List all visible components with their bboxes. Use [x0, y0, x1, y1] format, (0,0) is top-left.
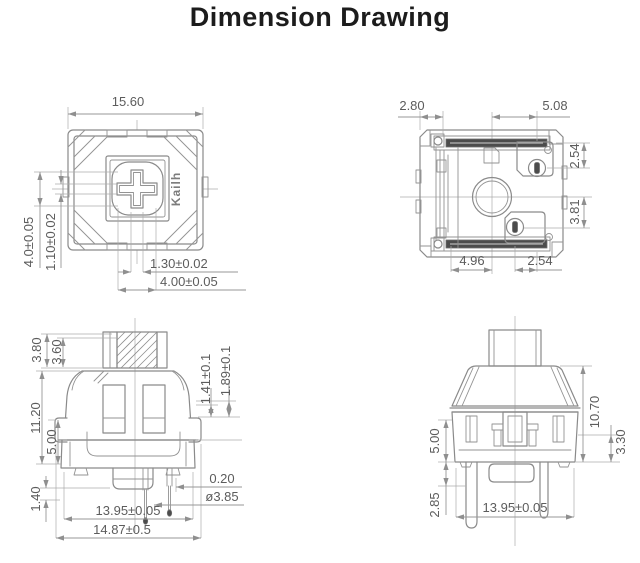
dim-label-side-pin-depth: 2.85 — [427, 492, 442, 517]
dim-label-top-slot-width: 1.30±0.02 — [150, 256, 208, 271]
stem-hatching — [117, 332, 157, 368]
dim-label-top-height-b: 1.10±0.02 — [43, 213, 58, 271]
view-bottom: 2.80 5.08 2.54 3.81 4.96 2.54 — [398, 98, 592, 274]
side-pin-left — [466, 462, 477, 528]
dim-label-boss-diameter: ø3.85 — [205, 489, 238, 504]
front-view-lower-housing — [58, 432, 198, 475]
dim-label-side-base-width: 13.95±0.05 — [483, 500, 548, 515]
side-view-dimension-lines — [446, 366, 611, 517]
dim-label-top-overall-width: 15.60 — [112, 94, 145, 109]
view-front: 3.80 3.60 11.20 5.00 1.40 1.41±0.1 1.89±… — [28, 318, 244, 538]
dim-label-pin-pitch: 5.08 — [542, 98, 567, 113]
dim-label-bottom-right: 2.54 — [527, 253, 552, 268]
contact-pin-bottom — [513, 222, 518, 233]
dim-label-side-skirt: 3.30 — [613, 429, 628, 454]
housing-corner-fillets — [72, 371, 184, 390]
dim-label-foot: 1.40 — [28, 486, 43, 511]
side-view-underside — [466, 462, 548, 528]
dim-label-pin-mid: 3.81 — [567, 199, 582, 224]
top-view-body — [63, 130, 208, 250]
contact-pin-top — [535, 163, 540, 174]
dim-label-pin-offset: 0.20 — [209, 471, 234, 486]
view-top: Kailh — [21, 94, 246, 290]
front-view-ears — [55, 418, 201, 442]
contact-pin-bottom-assembly — [505, 212, 545, 243]
drawing-canvas: Kailh — [0, 0, 640, 563]
dim-label-pin-top: 2.54 — [567, 143, 582, 168]
dim-label-front-overall-width: 14.87±0.5 — [93, 522, 151, 537]
dim-label-body-height: 11.20 — [28, 402, 43, 434]
dim-label-bottom-left: 4.96 — [459, 253, 484, 268]
leaf-spring-structure — [436, 148, 458, 248]
front-view-windows — [103, 385, 165, 433]
front-pin-right-tip — [167, 510, 171, 516]
front-view-upper-housing — [64, 371, 192, 440]
dim-label-side-lower-height: 5.00 — [427, 428, 442, 453]
dimension-drawing-page: Dimension Drawing — [0, 0, 640, 563]
dim-label-top-height-a: 4.0±0.05 — [21, 217, 36, 268]
side-center-boss — [489, 464, 534, 482]
dim-label-step-a: 1.41±0.1 — [198, 354, 213, 405]
dim-label-stem-full: 3.80 — [29, 337, 44, 362]
dim-label-step-b: 1.89±0.1 — [218, 346, 233, 397]
dim-label-side-body-height: 10.70 — [587, 396, 602, 429]
housing-dome-lines — [94, 371, 108, 383]
dim-label-top-cross-width: 4.00±0.05 — [160, 274, 218, 289]
dim-label-stem-travel: 3.60 — [49, 339, 64, 364]
view-side: 5.00 2.85 10.70 3.30 13.95±0.05 — [427, 316, 628, 546]
dim-label-left-offset: 2.80 — [399, 98, 424, 113]
brand-label: Kailh — [169, 172, 183, 206]
dim-label-base-width: 13.95±0.05 — [96, 503, 161, 518]
dim-label-lower-height: 5.00 — [44, 429, 59, 454]
